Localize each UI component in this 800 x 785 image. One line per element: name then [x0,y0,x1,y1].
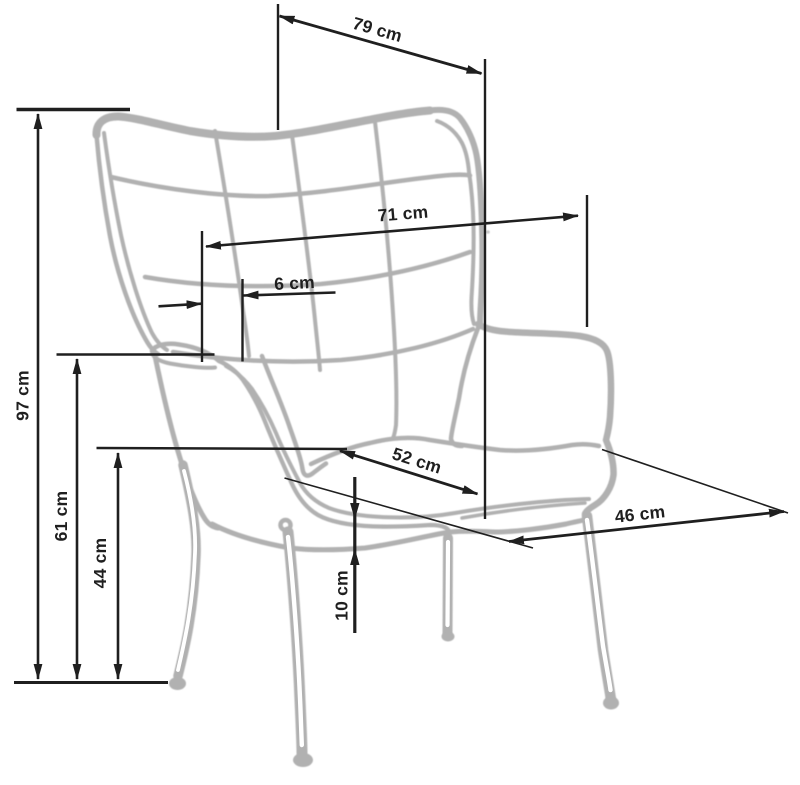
svg-text:71 cm: 71 cm [377,201,429,225]
svg-text:6 cm: 6 cm [274,272,316,294]
svg-text:97 cm: 97 cm [13,370,33,421]
svg-text:46 cm: 46 cm [614,501,667,526]
svg-text:61 cm: 61 cm [51,491,71,542]
svg-text:79 cm: 79 cm [350,13,404,46]
svg-text:10 cm: 10 cm [332,570,352,621]
svg-text:52 cm: 52 cm [390,443,444,477]
svg-text:44 cm: 44 cm [90,538,110,589]
